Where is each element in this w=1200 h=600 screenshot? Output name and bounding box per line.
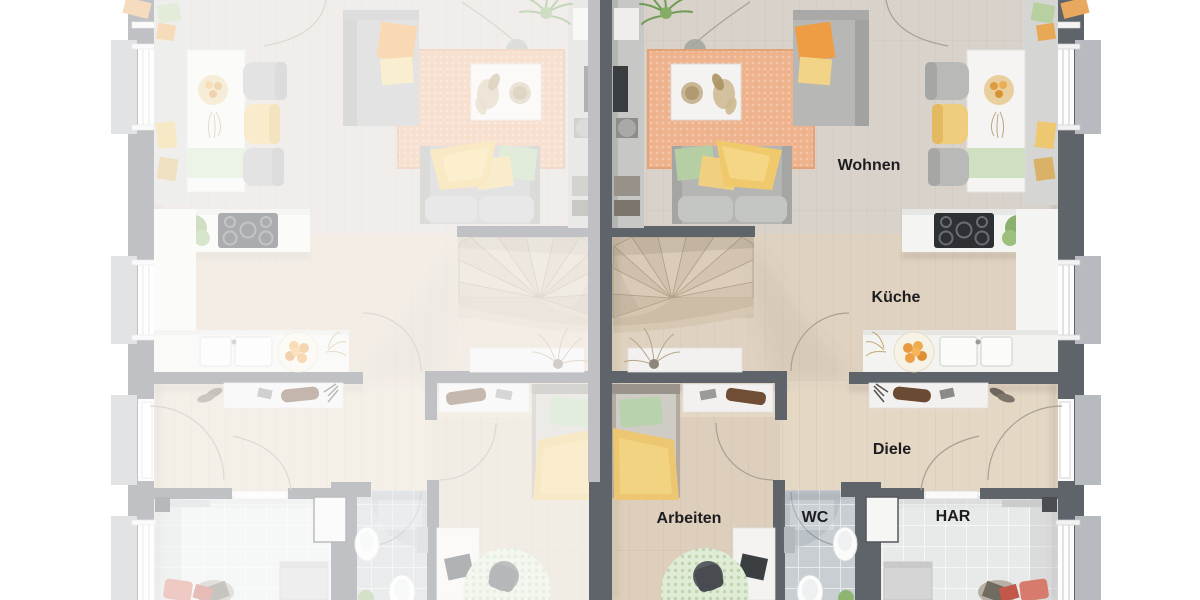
svg-text:HAR: HAR xyxy=(936,508,971,525)
svg-text:Küche: Küche xyxy=(872,289,921,306)
svg-text:WC: WC xyxy=(802,509,829,526)
svg-text:Wohnen: Wohnen xyxy=(838,157,901,174)
svg-text:Arbeiten: Arbeiten xyxy=(657,510,722,527)
svg-text:Diele: Diele xyxy=(873,441,911,458)
